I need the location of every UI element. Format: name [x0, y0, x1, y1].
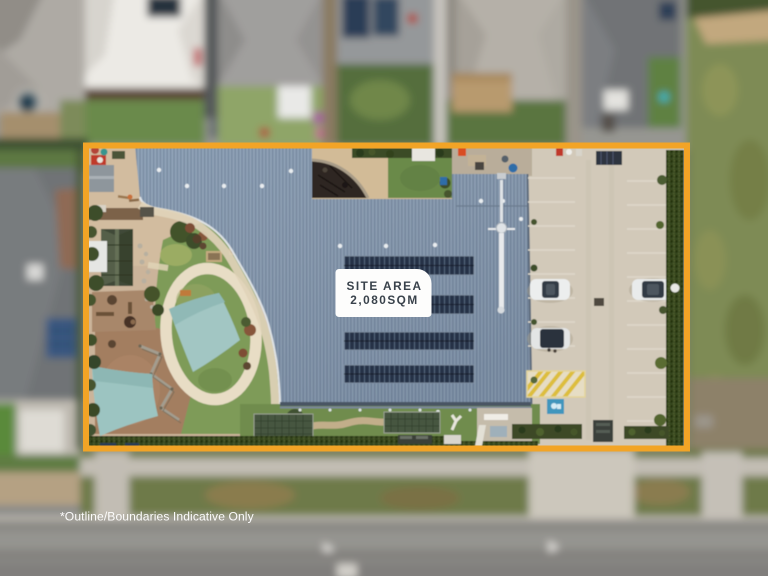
- svg-text:2,080SQM: 2,080SQM: [350, 293, 418, 307]
- svg-text:SITE AREA: SITE AREA: [347, 279, 423, 293]
- svg-text:*Outline/Boundaries Indicative: *Outline/Boundaries Indicative Only: [60, 510, 255, 524]
